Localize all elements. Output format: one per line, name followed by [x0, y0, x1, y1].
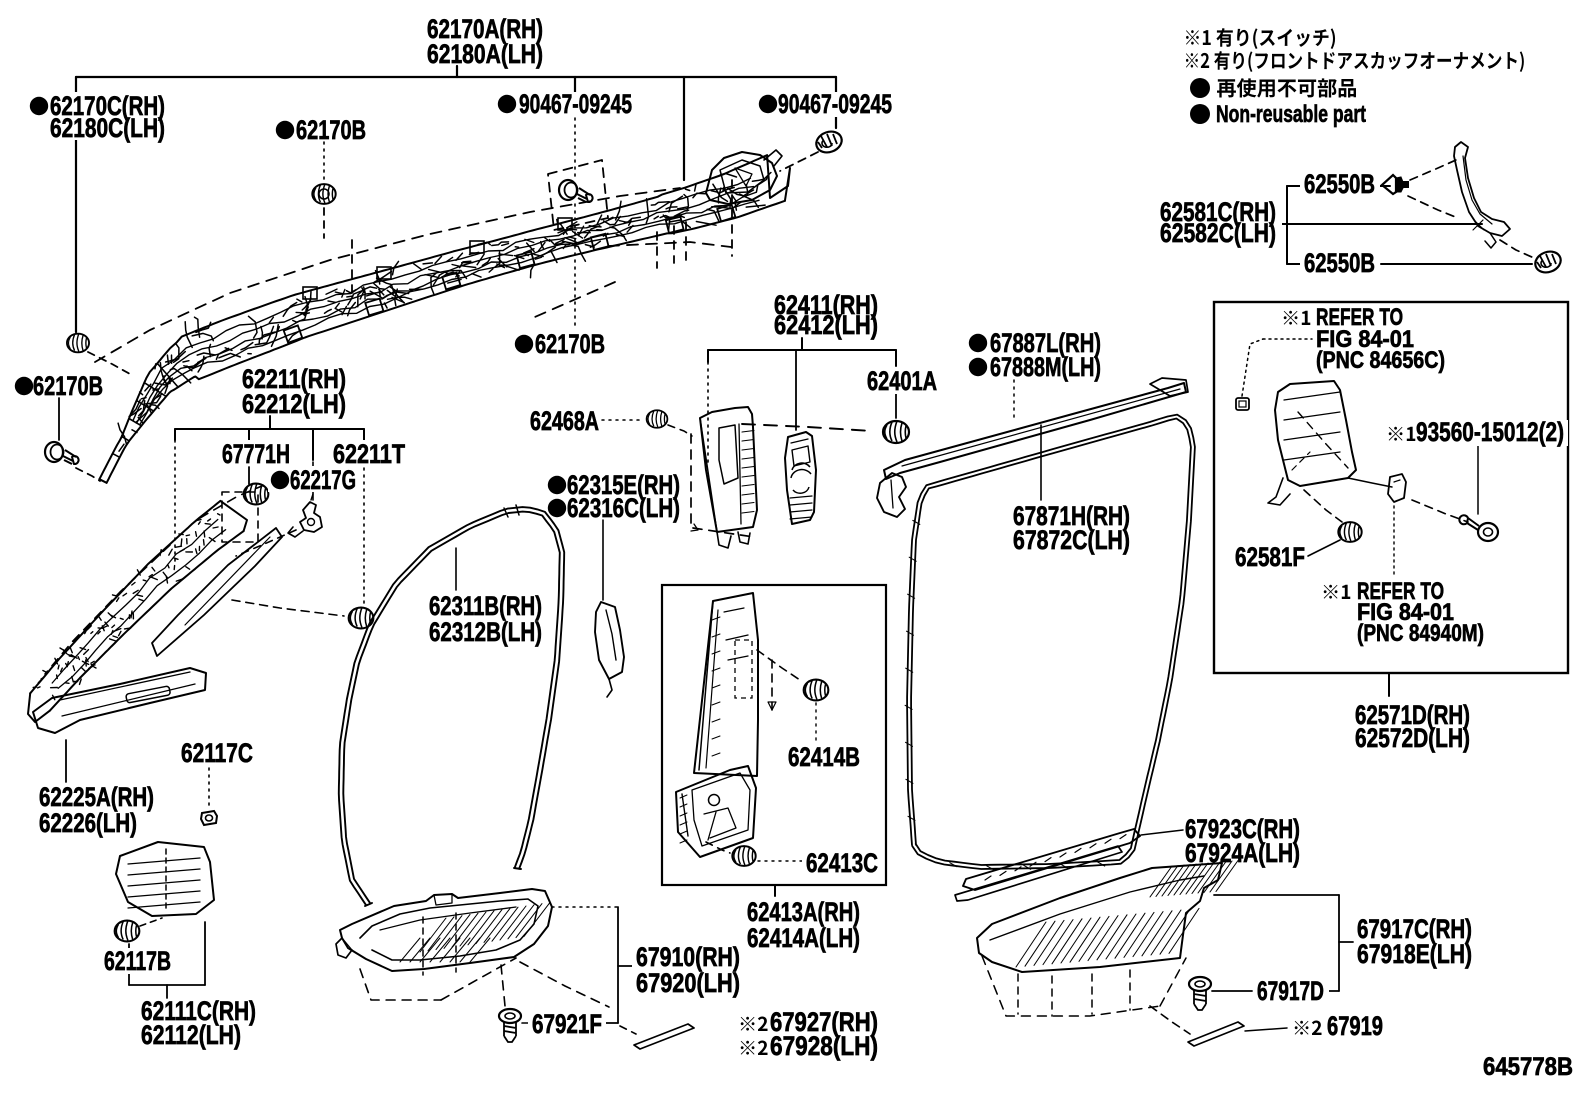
svg-text:62582C(LH): 62582C(LH) — [1160, 218, 1276, 248]
svg-text:62180A(LH): 62180A(LH) — [427, 39, 543, 69]
svg-text:93560-15012(2): 93560-15012(2) — [1416, 417, 1564, 447]
svg-text:62550B: 62550B — [1304, 248, 1375, 278]
svg-text:62401A: 62401A — [867, 366, 937, 396]
svg-text:67918E(LH): 67918E(LH) — [1357, 939, 1472, 969]
svg-text:67771H: 67771H — [222, 439, 290, 469]
svg-text:645778B: 645778B — [1483, 1053, 1573, 1081]
svg-text:62112(LH): 62112(LH) — [141, 1020, 241, 1050]
svg-text:62170B: 62170B — [33, 371, 103, 401]
svg-text:62180C(LH): 62180C(LH) — [50, 113, 165, 143]
svg-text:(PNC 84940M): (PNC 84940M) — [1357, 620, 1484, 647]
svg-text:(PNC 84656C): (PNC 84656C) — [1316, 347, 1445, 374]
svg-text:62550B: 62550B — [1304, 169, 1375, 199]
svg-text:67924A(LH): 67924A(LH) — [1185, 838, 1300, 868]
svg-text:62316C(LH): 62316C(LH) — [567, 493, 680, 523]
svg-text:62414B: 62414B — [788, 742, 860, 772]
svg-text:62581F: 62581F — [1235, 542, 1305, 572]
svg-text:67928(LH): 67928(LH) — [770, 1031, 878, 1061]
svg-text:62212(LH): 62212(LH) — [242, 389, 346, 419]
svg-text:62170B: 62170B — [296, 115, 366, 145]
svg-text:62414A(LH): 62414A(LH) — [747, 923, 860, 953]
svg-text:90467-09245: 90467-09245 — [519, 89, 632, 119]
svg-text:62572D(LH): 62572D(LH) — [1355, 723, 1470, 753]
svg-text:62117B: 62117B — [104, 946, 171, 976]
svg-text:62312B(LH): 62312B(LH) — [429, 617, 542, 647]
svg-text:62226(LH): 62226(LH) — [39, 808, 137, 838]
svg-text:67920(LH): 67920(LH) — [636, 968, 740, 998]
svg-text:62117C: 62117C — [181, 738, 253, 768]
svg-text:62170B: 62170B — [535, 329, 605, 359]
svg-text:67888M(LH): 67888M(LH) — [990, 352, 1101, 382]
svg-text:62413C: 62413C — [806, 848, 878, 878]
svg-text:67872C(LH): 67872C(LH) — [1013, 525, 1130, 555]
svg-text:67917D: 67917D — [1257, 976, 1324, 1006]
svg-text:Non-reusable part: Non-reusable part — [1216, 101, 1366, 128]
svg-text:90467-09245: 90467-09245 — [778, 89, 892, 119]
svg-text:62468A: 62468A — [530, 406, 599, 436]
svg-text:67919: 67919 — [1327, 1011, 1383, 1041]
svg-text:62217G: 62217G — [290, 465, 356, 495]
svg-text:67921F: 67921F — [532, 1009, 602, 1039]
svg-text:62412(LH): 62412(LH) — [774, 310, 878, 340]
